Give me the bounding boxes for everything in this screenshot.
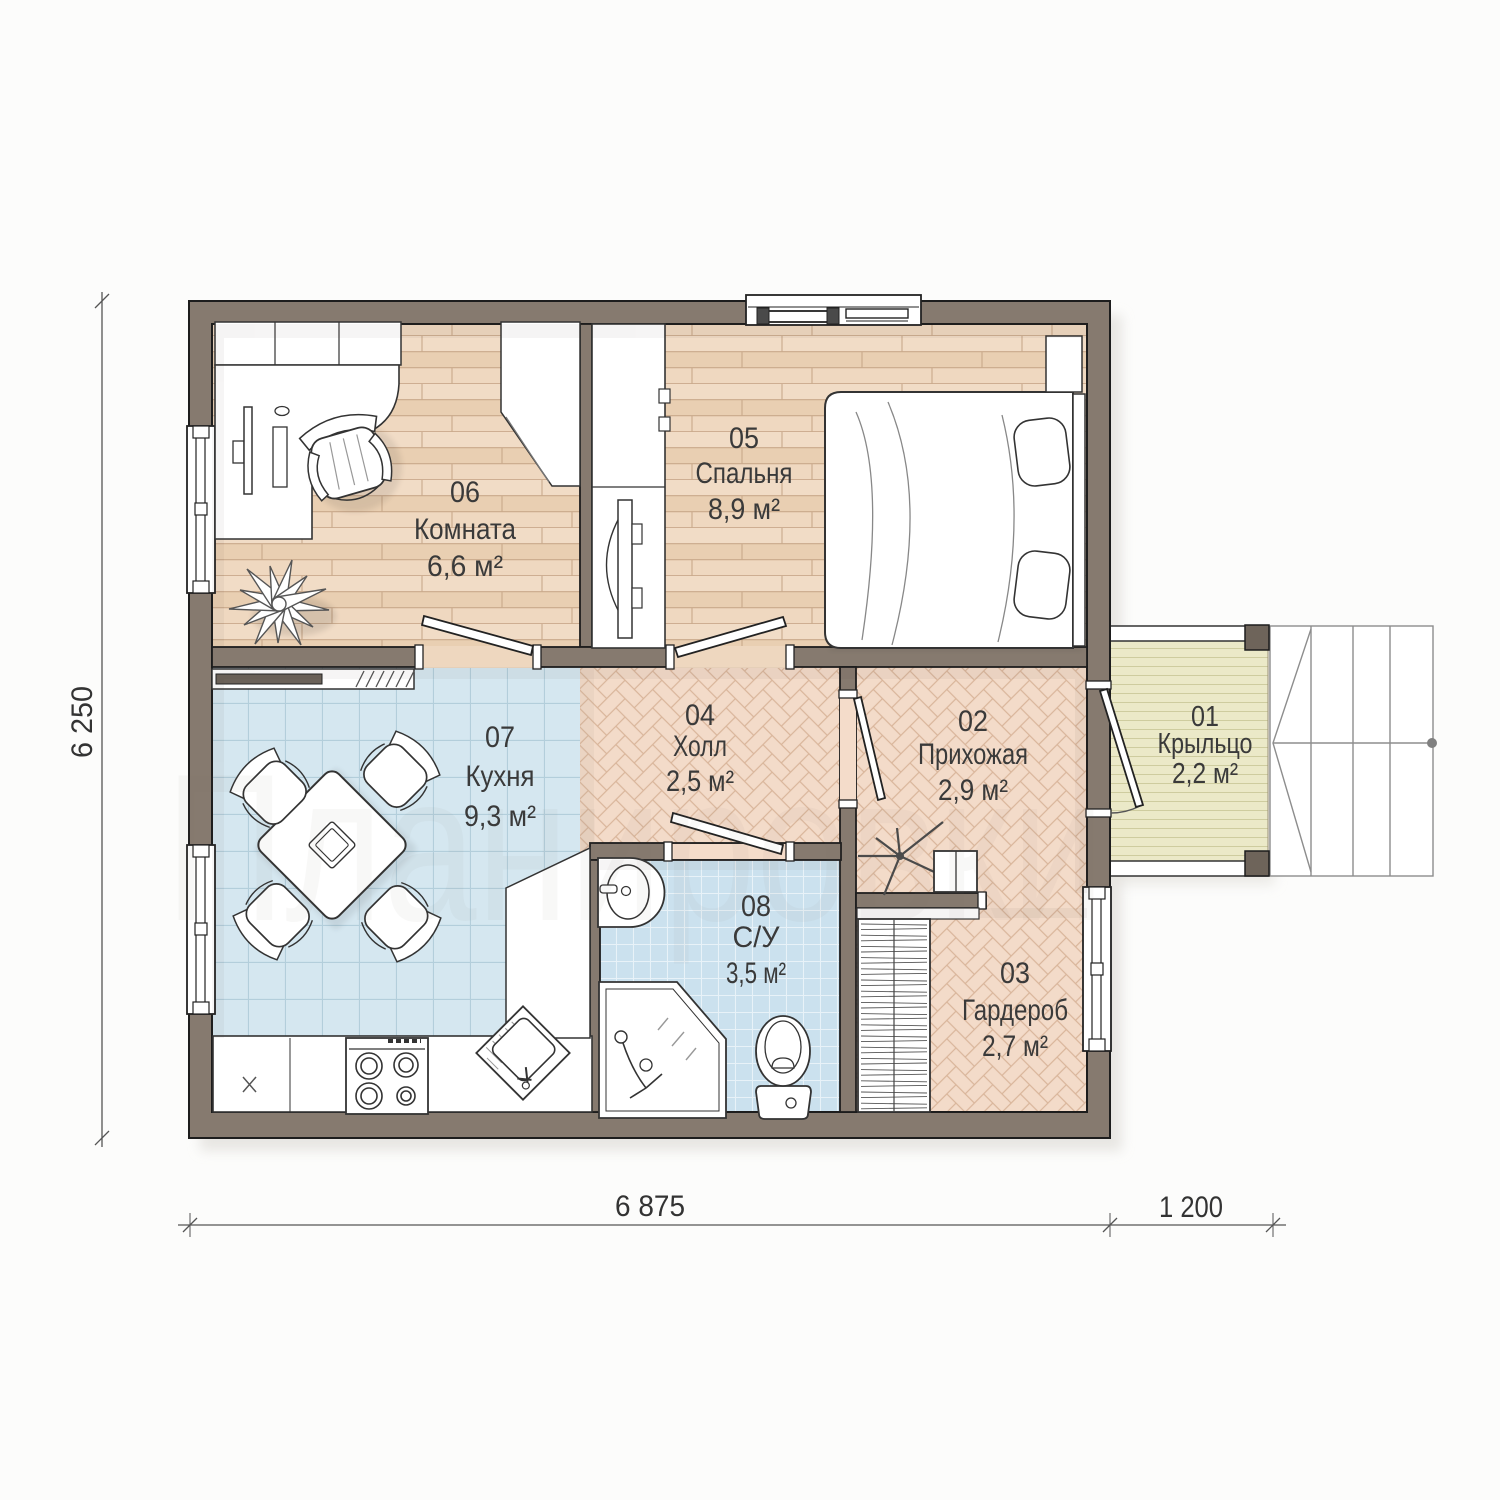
svg-text:06: 06 <box>450 476 480 509</box>
svg-text:Прихожая: Прихожая <box>918 738 1028 771</box>
svg-text:6,6 м²: 6,6 м² <box>427 550 503 583</box>
svg-text:С/У: С/У <box>733 921 781 954</box>
svg-text:Кухня: Кухня <box>466 760 535 793</box>
svg-text:Крыльцо: Крыльцо <box>1158 728 1253 760</box>
svg-text:Комната: Комната <box>414 513 516 546</box>
svg-text:6 875: 6 875 <box>615 1190 685 1223</box>
svg-text:8,9 м²: 8,9 м² <box>708 493 780 526</box>
svg-text:04: 04 <box>685 699 715 732</box>
svg-text:2,5 м²: 2,5 м² <box>666 765 734 798</box>
svg-text:2,9 м²: 2,9 м² <box>938 774 1008 807</box>
svg-text:3,5 м²: 3,5 м² <box>726 957 786 990</box>
svg-text:2,2 м²: 2,2 м² <box>1172 758 1238 790</box>
svg-text:2,7 м²: 2,7 м² <box>982 1030 1048 1063</box>
svg-text:07: 07 <box>485 721 515 754</box>
svg-text:02: 02 <box>958 705 988 738</box>
svg-text:03: 03 <box>1000 957 1030 990</box>
svg-text:08: 08 <box>741 890 771 923</box>
svg-text:Спальня: Спальня <box>696 457 793 490</box>
svg-text:Гардероб: Гардероб <box>962 994 1068 1027</box>
svg-text:1 200: 1 200 <box>1159 1191 1223 1224</box>
svg-text:6 250: 6 250 <box>66 686 99 758</box>
svg-text:05: 05 <box>729 422 759 455</box>
svg-text:Холл: Холл <box>673 730 727 763</box>
svg-text:9,3 м²: 9,3 м² <box>464 800 536 833</box>
